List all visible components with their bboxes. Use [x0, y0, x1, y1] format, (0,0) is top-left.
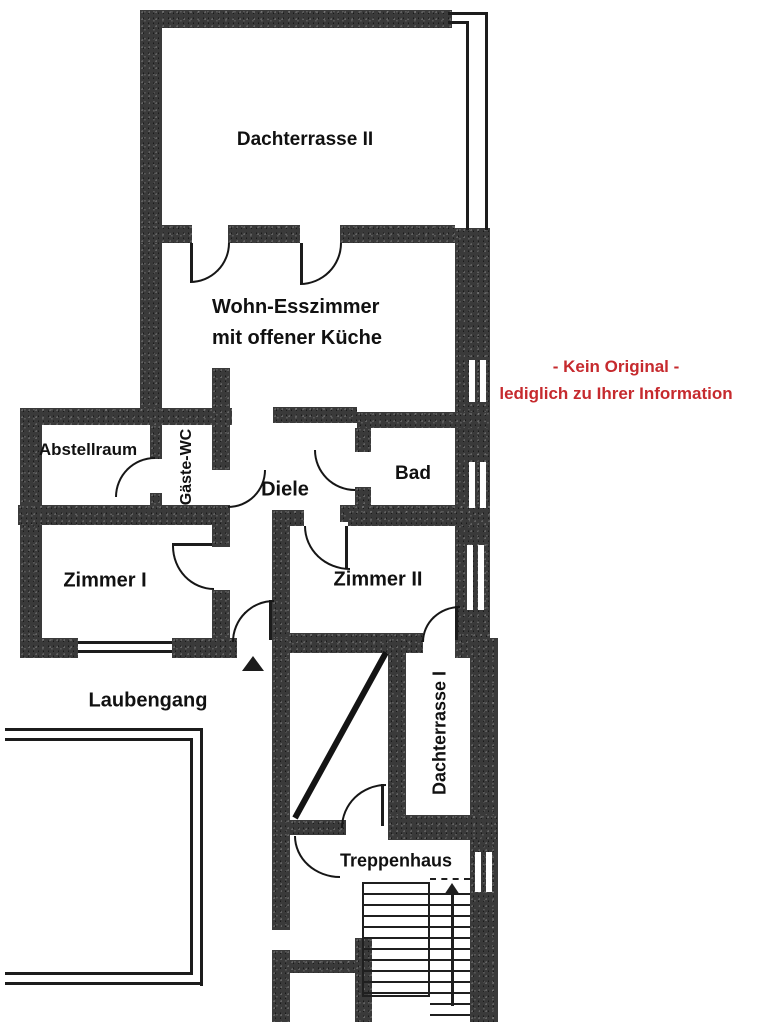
wall-segment — [340, 225, 455, 243]
room-label-gaeste-wc: Gäste-WC — [178, 429, 196, 505]
disclaimer-text: - Kein Original - lediglich zu Ihrer Inf… — [478, 353, 754, 407]
railing-line — [200, 728, 203, 986]
wall-segment — [212, 505, 230, 547]
wall-segment — [172, 638, 237, 658]
wall-segment — [272, 658, 290, 833]
stairs-right-flight — [430, 884, 470, 1022]
room-label-zimmer-1: Zimmer I — [63, 570, 146, 593]
window — [467, 545, 473, 610]
door-arc — [304, 526, 350, 570]
room-label-wohnzimmer-line2: mit offener Küche — [212, 323, 382, 354]
railing-line — [466, 21, 469, 230]
railing-line — [485, 12, 488, 230]
wall-segment — [228, 225, 300, 243]
disclaimer-line2: lediglich zu Ihrer Information — [478, 380, 754, 407]
room-label-dachterrasse-1: Dachterrasse I — [430, 671, 451, 795]
disclaimer-line1: - Kein Original - — [478, 353, 754, 380]
wall-segment — [140, 10, 162, 425]
wall-segment — [20, 638, 78, 658]
wall-segment — [18, 505, 230, 525]
window — [78, 641, 172, 644]
floor-plan: Dachterrasse II Wohn-Esszimmer mit offen… — [0, 0, 763, 1022]
door-arc — [341, 784, 386, 828]
wall-segment — [348, 510, 470, 526]
room-label-diele: Diele — [261, 479, 309, 502]
wall-segment — [273, 407, 357, 423]
room-label-bad: Bad — [395, 463, 431, 485]
door-arc — [422, 606, 460, 642]
wall-segment — [290, 960, 357, 973]
window — [78, 650, 172, 653]
window — [486, 852, 492, 892]
window — [475, 852, 481, 892]
room-label-zimmer-2: Zimmer II — [334, 569, 423, 592]
wall-segment — [290, 820, 346, 835]
room-label-treppenhaus: Treppenhaus — [340, 851, 452, 872]
wall-segment — [150, 425, 162, 459]
door-arc — [190, 243, 230, 283]
stairs-direction-arrow — [451, 894, 454, 1006]
wall-segment — [140, 10, 452, 28]
door-arc — [314, 450, 355, 491]
railing-line — [448, 12, 488, 15]
entrance-arrow — [242, 656, 264, 671]
wall-segment — [388, 638, 406, 833]
railing-line — [448, 21, 468, 24]
stairs-dashed-line — [430, 878, 470, 880]
railing-line — [5, 982, 203, 985]
wall-segment — [357, 412, 490, 428]
window — [469, 462, 475, 508]
railing-line — [5, 738, 193, 741]
door-arc — [172, 546, 214, 590]
door-arc — [294, 836, 340, 878]
stairs-left-flight — [362, 882, 430, 997]
wall-segment — [140, 225, 192, 243]
wall-segment — [212, 368, 230, 470]
window — [469, 360, 475, 402]
wall-segment — [20, 408, 232, 425]
window — [478, 545, 484, 610]
wall-segment — [272, 833, 290, 930]
room-label-laubengang: Laubengang — [89, 690, 208, 713]
wall-segment — [272, 950, 290, 1022]
stairs-arrow-head-icon — [444, 883, 460, 895]
railing-line — [5, 728, 203, 731]
wall-segment — [355, 428, 371, 452]
room-label-dachterrasse-2: Dachterrasse II — [237, 129, 373, 151]
door-arc — [300, 243, 342, 285]
door-arc — [232, 600, 274, 642]
railing-line — [5, 972, 193, 975]
room-label-wohnzimmer: Wohn-Esszimmer mit offener Küche — [212, 292, 382, 354]
room-label-abstellraum: Abstellraum — [39, 440, 137, 460]
wall-segment — [388, 815, 498, 840]
door-arc — [115, 457, 155, 497]
room-label-wohnzimmer-line1: Wohn-Esszimmer — [212, 292, 382, 323]
window — [480, 462, 486, 508]
railing-line — [190, 738, 193, 974]
